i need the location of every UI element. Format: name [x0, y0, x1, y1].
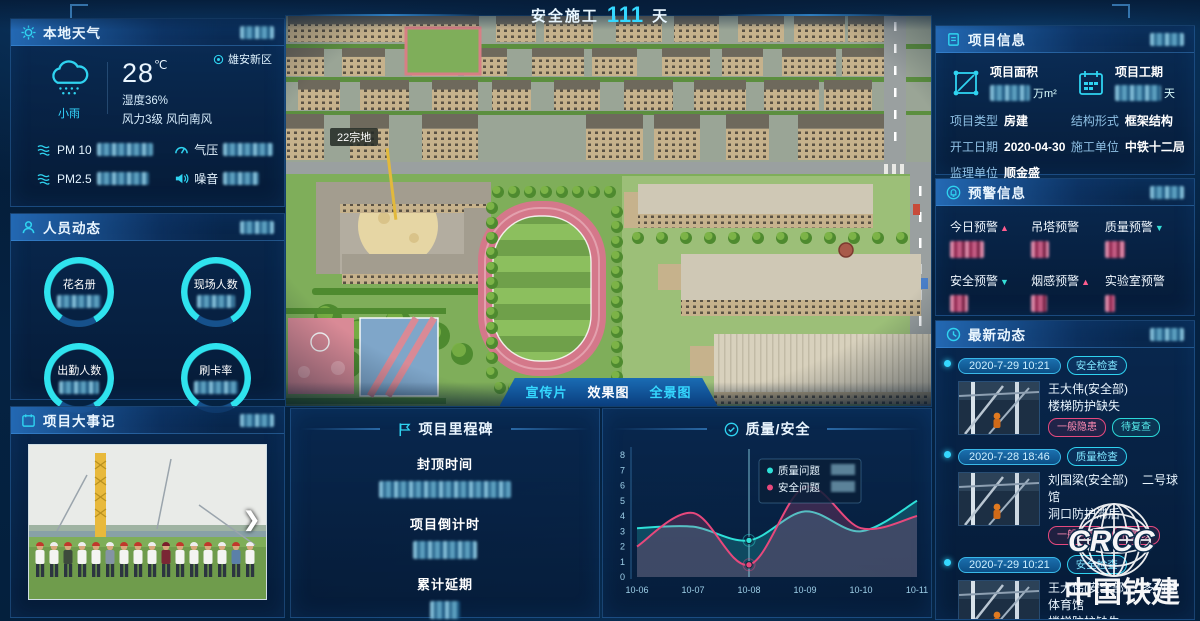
personnel-panel-title: 人员动态 [43, 217, 101, 237]
promo-video-button[interactable]: 宣传片 [525, 382, 567, 401]
blurred-value [197, 295, 235, 308]
header-deco-mosaic [1150, 186, 1184, 199]
weather-condition: 小雨 [37, 58, 101, 121]
frame-corner-right [1112, 4, 1130, 18]
dashboard: 安全施工 111 天 本地天气 雄安新区 [0, 0, 1200, 621]
update-entry[interactable]: 2020-7-28 18:46质量检查 刘国梁(安全部)二号球馆 洞口防护滞后 … [958, 447, 1186, 545]
blurred-value [1105, 295, 1115, 312]
temperature-value: 28 [122, 58, 154, 88]
blurred-value [1031, 241, 1049, 258]
milestone-countdown: 项目倒计时 [291, 514, 599, 559]
shield-check-icon [724, 422, 739, 437]
trend-up-icon: ▲ [1081, 277, 1090, 287]
panel-alerts: 预警信息 今日预警▲ 吊塔预警 质量预警▼ 安全预警▼ 烟感预警▲ 实验室预警 [935, 178, 1195, 316]
panel-weather: 本地天气 雄安新区 小雨 28℃ 湿度36% 风力3级 风向南风 [10, 18, 285, 207]
project-info-title: 项目信息 [968, 29, 1026, 49]
project-fields: 项目类型房建 结构形式框架结构 开工日期2020-04-30 施工单位中铁十二局… [936, 110, 1194, 181]
update-entry[interactable]: 2020-7-29 10:21安全检查 王大伟(安全部) 楼梯防护缺失 一般隐患… [958, 356, 1186, 437]
blurred-value [97, 143, 153, 156]
clock-icon [946, 327, 961, 342]
alert-quality: 质量预警▼ [1105, 218, 1186, 258]
svg-text:质量问题: 质量问题 [778, 464, 820, 477]
updates-header: 最新动态 [936, 321, 1194, 348]
trend-up-icon: ▲ [1000, 223, 1009, 233]
milestone-delay: 累计延期 [291, 574, 599, 619]
svg-text:10-08: 10-08 [737, 585, 760, 595]
personnel-panel-header: 人员动态 [11, 214, 284, 241]
blurred-value [950, 295, 968, 312]
svg-text:4: 4 [620, 511, 625, 521]
header-title: 安全施工 [531, 5, 599, 26]
alerts-title: 预警信息 [968, 182, 1026, 202]
calendar-icon [1075, 67, 1107, 99]
divider [107, 62, 108, 114]
milestone-topping: 封顶时间 [291, 454, 599, 499]
trend-down-icon: ▼ [1000, 277, 1009, 287]
alerts-grid: 今日预警▲ 吊塔预警 质量预警▼ 安全预警▼ 烟感预警▲ 实验室预警 [936, 206, 1194, 312]
svg-text:6: 6 [620, 481, 625, 491]
tower-crane [95, 453, 106, 537]
metric-pm25: PM2.5 [37, 170, 174, 187]
campus-3d-view[interactable]: 22宗地 宣传片 效果图 全景图 [285, 15, 932, 407]
stat-duration: 项目工期 天 [1075, 63, 1186, 102]
entry-date: 2020-7-29 10:21 [958, 358, 1061, 374]
header-deco-mosaic [240, 221, 274, 234]
entry-person: 王大伟(安全部) [1048, 581, 1128, 595]
metric-noise: 噪音 [174, 170, 284, 187]
alarm-bell-icon [946, 185, 961, 200]
entry-person: 刘国梁(安全部) [1048, 473, 1128, 487]
svg-text:1: 1 [620, 557, 625, 567]
metric-pm10: PM 10 [37, 141, 174, 158]
blurred-value [223, 143, 273, 156]
blurred-value [990, 85, 1030, 101]
blurred-value [57, 295, 101, 308]
header-deco-right [720, 14, 900, 16]
blurred-value [194, 381, 238, 394]
location-badge: 雄安新区 [213, 51, 272, 67]
wind-label: 风力3级 风向南风 [122, 111, 212, 127]
view-switcher: 宣传片 效果图 全景图 [499, 378, 717, 406]
campus-render [286, 16, 931, 406]
gauge-swipe-rate: 刷卡率 [181, 343, 251, 413]
blurred-value [97, 172, 149, 185]
carousel-next-button[interactable]: ❯ [243, 507, 260, 532]
blurred-value [1105, 241, 1125, 258]
blurred-value [413, 541, 477, 559]
project-stats: 项目面积 万m² 项目工期 天 [936, 53, 1194, 110]
milestone-title: 项目里程碑 [419, 419, 494, 439]
panorama-button[interactable]: 全景图 [650, 382, 692, 401]
field-structure: 结构形式框架结构 [1071, 112, 1186, 129]
hazard-badge: 一般问题 [1048, 526, 1106, 545]
entry-issue: 楼梯防护缺失 [1048, 398, 1160, 415]
entry-photo [958, 472, 1040, 526]
area-icon [950, 67, 982, 99]
panel-milestone: 项目里程碑 封顶时间 项目倒计时 累计延期 [290, 408, 600, 618]
temperature-unit: ℃ [154, 58, 167, 72]
svg-text:5: 5 [620, 496, 625, 506]
mist-icon [37, 171, 52, 186]
panel-events: 项目大事记 [10, 406, 285, 618]
gauge-attendance: 出勤人数 [44, 343, 114, 413]
metric-pressure: 气压 [174, 141, 284, 158]
alerts-header: 预警信息 [936, 179, 1194, 206]
gauge-grid: 花名册 现场人数 出勤人数 刷卡率 [11, 241, 284, 413]
svg-text:7: 7 [620, 465, 625, 475]
svg-text:安全问题: 安全问题 [778, 481, 820, 494]
svg-text:10-10: 10-10 [849, 585, 872, 595]
frame-corner-left [70, 4, 88, 18]
location-label: 雄安新区 [228, 51, 272, 67]
alert-safety: 安全预警▼ [950, 272, 1031, 312]
alert-today: 今日预警▲ [950, 218, 1031, 258]
flag-icon [397, 422, 412, 437]
entry-date: 2020-7-29 10:21 [958, 557, 1061, 573]
header-deco-mosaic [240, 414, 274, 427]
blurred-value [59, 381, 99, 394]
parcel-label: 22宗地 [330, 128, 378, 146]
gauge-roster: 花名册 [44, 257, 114, 327]
status-badge: 待复查 [1112, 418, 1160, 437]
chart-title: 质量/安全 [746, 419, 811, 439]
render-view-button[interactable]: 效果图 [587, 382, 629, 401]
safe-days-count: 111 [607, 2, 644, 28]
entry-date: 2020-7-28 18:46 [958, 449, 1061, 465]
entry-tag: 质量检查 [1067, 447, 1127, 466]
gauge-onsite: 现场人数 [181, 257, 251, 327]
gauge-icon [174, 142, 189, 157]
updates-title: 最新动态 [968, 324, 1026, 344]
events-panel-title: 项目大事记 [43, 410, 116, 430]
blurred-value [950, 241, 984, 258]
header-deco-mosaic [1150, 328, 1184, 341]
condition-label: 小雨 [37, 105, 101, 121]
entry-tag: 安全检查 [1067, 555, 1127, 574]
quality-safety-chart[interactable]: 01234567810-0610-0710-0810-0910-1010-11质… [603, 439, 931, 609]
humidity-label: 湿度36% [122, 92, 212, 108]
svg-text:10-07: 10-07 [681, 585, 704, 595]
field-project-type: 项目类型房建 [950, 112, 1071, 129]
speaker-icon [174, 171, 189, 186]
update-entry[interactable]: 2020-7-29 10:21安全检查 王大伟(安全部)多功能体育馆 楼梯防护缺… [958, 555, 1186, 620]
entry-photo [958, 580, 1040, 620]
calendar-note-icon [21, 413, 36, 428]
panel-personnel: 人员动态 花名册 现场人数 出勤人数 刷卡率 [10, 213, 285, 400]
entry-tag: 安全检查 [1067, 356, 1127, 375]
blurred-value [430, 601, 460, 619]
panel-quality-safety: 质量/安全 01234567810-0610-0710-0810-0910-10… [602, 408, 932, 618]
events-panel-header: 项目大事记 [11, 407, 284, 434]
header-deco-mosaic [1150, 33, 1184, 46]
events-photo: ❯ [28, 444, 267, 600]
location-pin-icon [213, 54, 224, 65]
svg-text:3: 3 [620, 526, 625, 536]
entry-issue: 楼梯防护缺失 [1048, 614, 1186, 620]
alert-lab: 实验室预警 [1105, 272, 1186, 312]
svg-text:2: 2 [620, 542, 625, 552]
chart-header: 质量/安全 [603, 409, 931, 439]
entry-person: 王大伟(安全部) [1048, 382, 1128, 396]
svg-text:10-06: 10-06 [625, 585, 648, 595]
rain-cloud-icon [45, 58, 93, 98]
header-title-unit: 天 [652, 5, 669, 26]
header-deco-left [300, 14, 480, 16]
field-start-date: 开工日期2020-04-30 [950, 138, 1071, 155]
svg-text:8: 8 [620, 450, 625, 460]
stat-area: 项目面积 万m² [950, 63, 1061, 102]
panel-project-info: 项目信息 项目面积 万m² 项目工期 天 [935, 25, 1195, 175]
trend-down-icon: ▼ [1155, 223, 1164, 233]
project-info-header: 项目信息 [936, 26, 1194, 53]
group-photo [29, 445, 266, 599]
weather-details: 28℃ 湿度36% 风力3级 风向南风 [122, 58, 212, 127]
milestone-header: 项目里程碑 [291, 409, 599, 439]
document-icon [946, 32, 961, 47]
svg-text:10-11: 10-11 [906, 585, 928, 595]
mist-icon [37, 142, 52, 157]
weather-current: 小雨 28℃ 湿度36% 风力3级 风向南风 [37, 58, 284, 127]
blurred-value [223, 172, 259, 185]
svg-text:0: 0 [620, 572, 625, 582]
blurred-value [1115, 85, 1161, 101]
blurred-value [1031, 295, 1047, 312]
weather-metrics: PM 10 气压 PM2.5 噪音 [37, 141, 284, 187]
entry-photo [958, 381, 1040, 435]
svg-text:10-09: 10-09 [793, 585, 816, 595]
alert-crane: 吊塔预警 [1031, 218, 1105, 258]
entry-issue: 洞口防护滞后 [1048, 506, 1186, 523]
blurred-value [379, 481, 511, 498]
panel-updates: 最新动态 2020-7-29 10:21安全检查 王大伟(安全部) 楼梯防护缺失… [935, 320, 1195, 620]
field-builder: 施工单位中铁十二局 [1071, 138, 1186, 155]
status-badge: 待整改 [1112, 526, 1160, 545]
person-icon [21, 220, 36, 235]
alert-smoke: 烟感预警▲ [1031, 272, 1105, 312]
hazard-badge: 一般隐患 [1048, 418, 1106, 437]
page-header: 安全施工 111 天 [0, 0, 1200, 30]
